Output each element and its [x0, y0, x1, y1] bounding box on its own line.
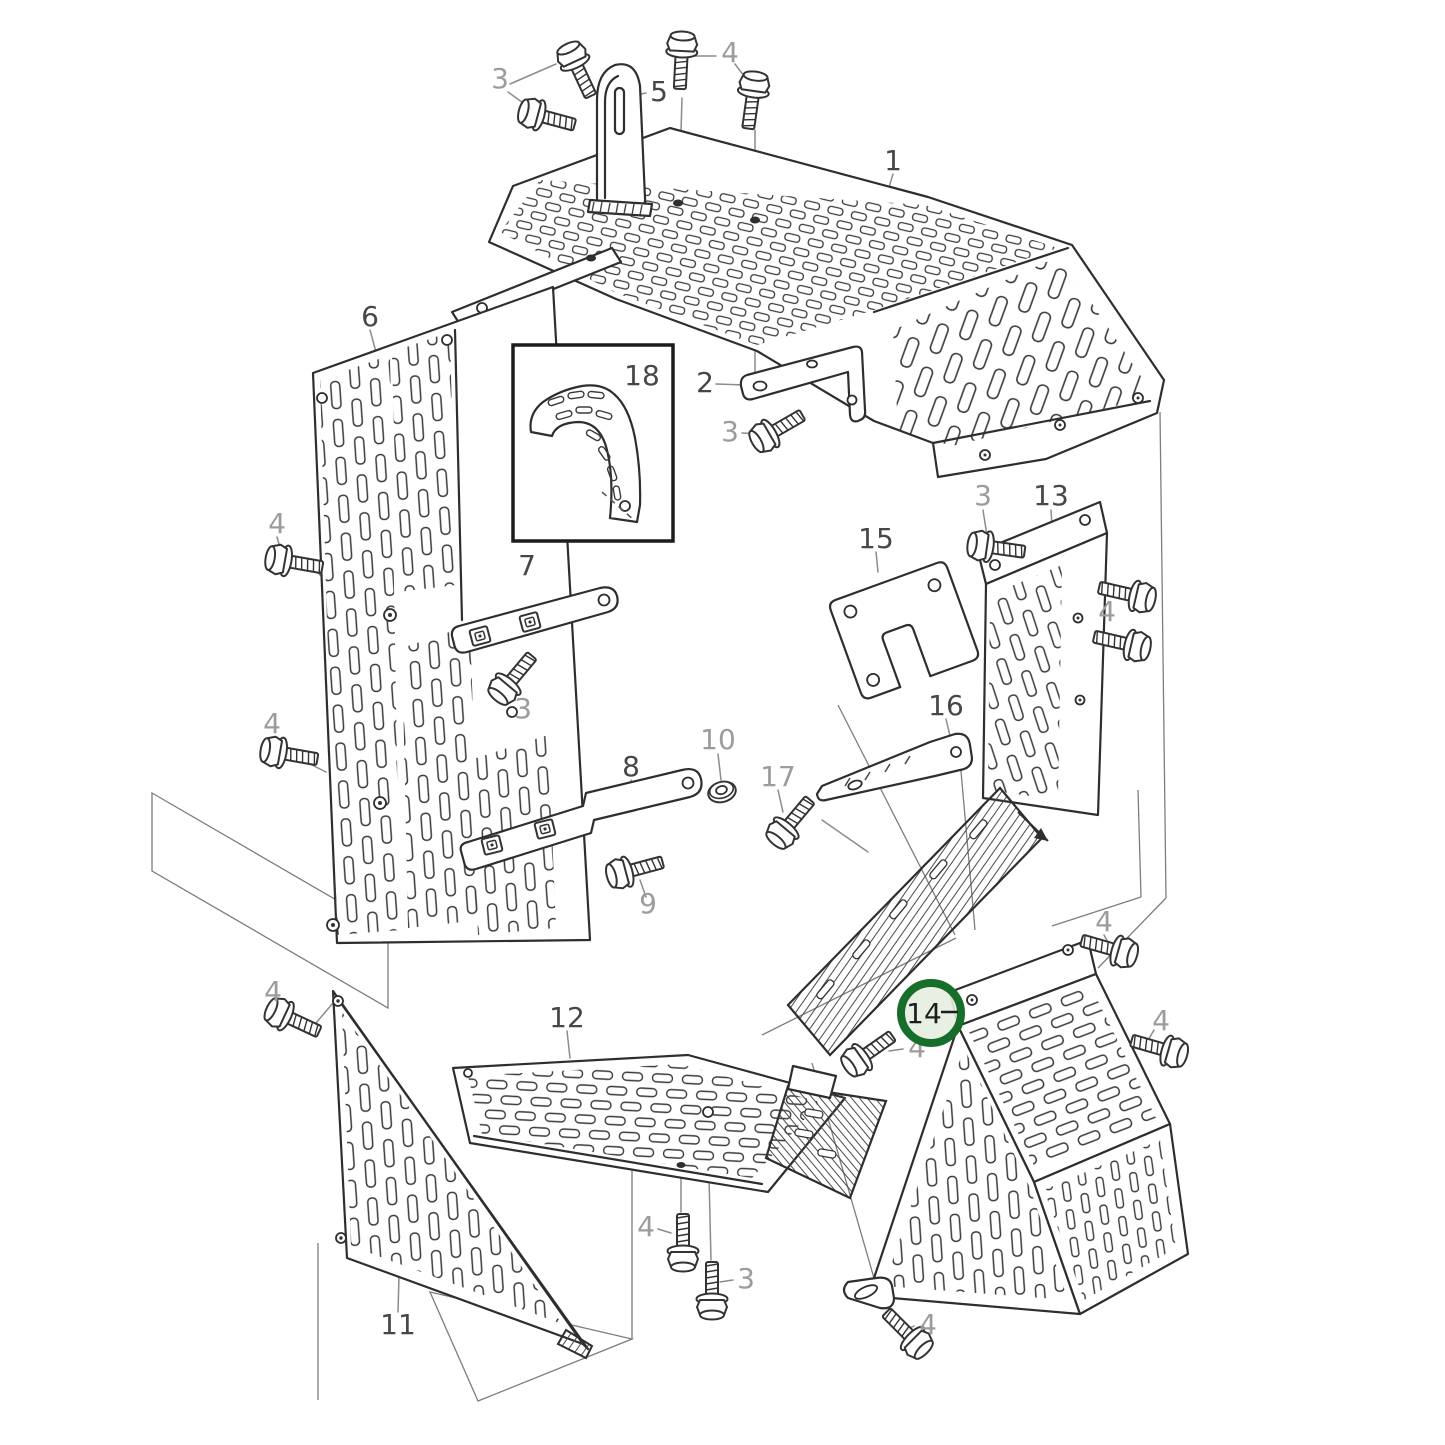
- callout-6-18[interactable]: 6: [361, 300, 379, 333]
- callout-7-19[interactable]: 7: [518, 549, 536, 582]
- callout-4-10[interactable]: 4: [264, 975, 282, 1008]
- bolt-item-3-19: [697, 1262, 728, 1320]
- callout-9-21[interactable]: 9: [639, 887, 657, 920]
- callout-18-29[interactable]: 18: [624, 359, 660, 392]
- callout-16-27[interactable]: 16: [928, 689, 964, 722]
- callout-2-1[interactable]: 2: [696, 366, 714, 399]
- bolt-item-4-5: [263, 542, 325, 583]
- callout-3-4[interactable]: 3: [514, 692, 532, 725]
- callout-17-28[interactable]: 17: [760, 760, 796, 793]
- callout-4-12[interactable]: 4: [1095, 905, 1113, 938]
- bolt-item-4-3: [733, 69, 772, 130]
- callout-12-24[interactable]: 12: [549, 1001, 585, 1034]
- highlight-layer: 14: [901, 983, 961, 1043]
- callout-11-23[interactable]: 11: [380, 1308, 416, 1341]
- callout-4-8[interactable]: 4: [268, 507, 286, 540]
- strap-16: [817, 734, 972, 801]
- callout-3-6[interactable]: 3: [737, 1262, 755, 1295]
- parts-diagram-page: 12333334444444444567891011121315161718 1…: [0, 0, 1445, 1445]
- bolt-item-4-2: [664, 31, 698, 90]
- callout-5-17[interactable]: 5: [650, 75, 668, 108]
- callout-4-9[interactable]: 4: [263, 707, 281, 740]
- callout-10-22[interactable]: 10: [700, 723, 736, 756]
- callout-4-13[interactable]: 4: [1152, 1004, 1170, 1037]
- callout-4-7[interactable]: 4: [721, 36, 739, 69]
- washer-item-10-20: [706, 779, 738, 806]
- bracket-5: [588, 64, 652, 216]
- bolt-item-4-18: [668, 1214, 699, 1272]
- bolt-item-4-6: [258, 734, 320, 775]
- callout-1-0[interactable]: 1: [884, 144, 902, 177]
- panel-right-lower-guard: [844, 940, 1188, 1314]
- callout-13-25[interactable]: 13: [1033, 479, 1069, 512]
- callout-3-3[interactable]: 3: [721, 415, 739, 448]
- exploded-view-canvas: 12333334444444444567891011121315161718 1…: [0, 0, 1445, 1445]
- callout-8-20[interactable]: 8: [622, 750, 640, 783]
- callout-4-11[interactable]: 4: [1098, 595, 1116, 628]
- callout-15-26[interactable]: 15: [858, 522, 894, 555]
- callout-3-2[interactable]: 3: [491, 62, 509, 95]
- callout-3-5[interactable]: 3: [974, 479, 992, 512]
- bracket-15: [828, 560, 980, 700]
- panel-triangle-guard: [333, 991, 592, 1358]
- bolt-item-3-1: [515, 95, 579, 140]
- bolt-item-9-9: [603, 847, 667, 892]
- bolt-item-17-10: [761, 790, 822, 854]
- callout-4-15[interactable]: 4: [919, 1308, 937, 1341]
- bottom-plate-12: [453, 1055, 886, 1198]
- highlighted-callout-14[interactable]: 14: [906, 997, 942, 1030]
- callout-4-16[interactable]: 4: [637, 1210, 655, 1243]
- bolt-item-3-4: [745, 402, 810, 458]
